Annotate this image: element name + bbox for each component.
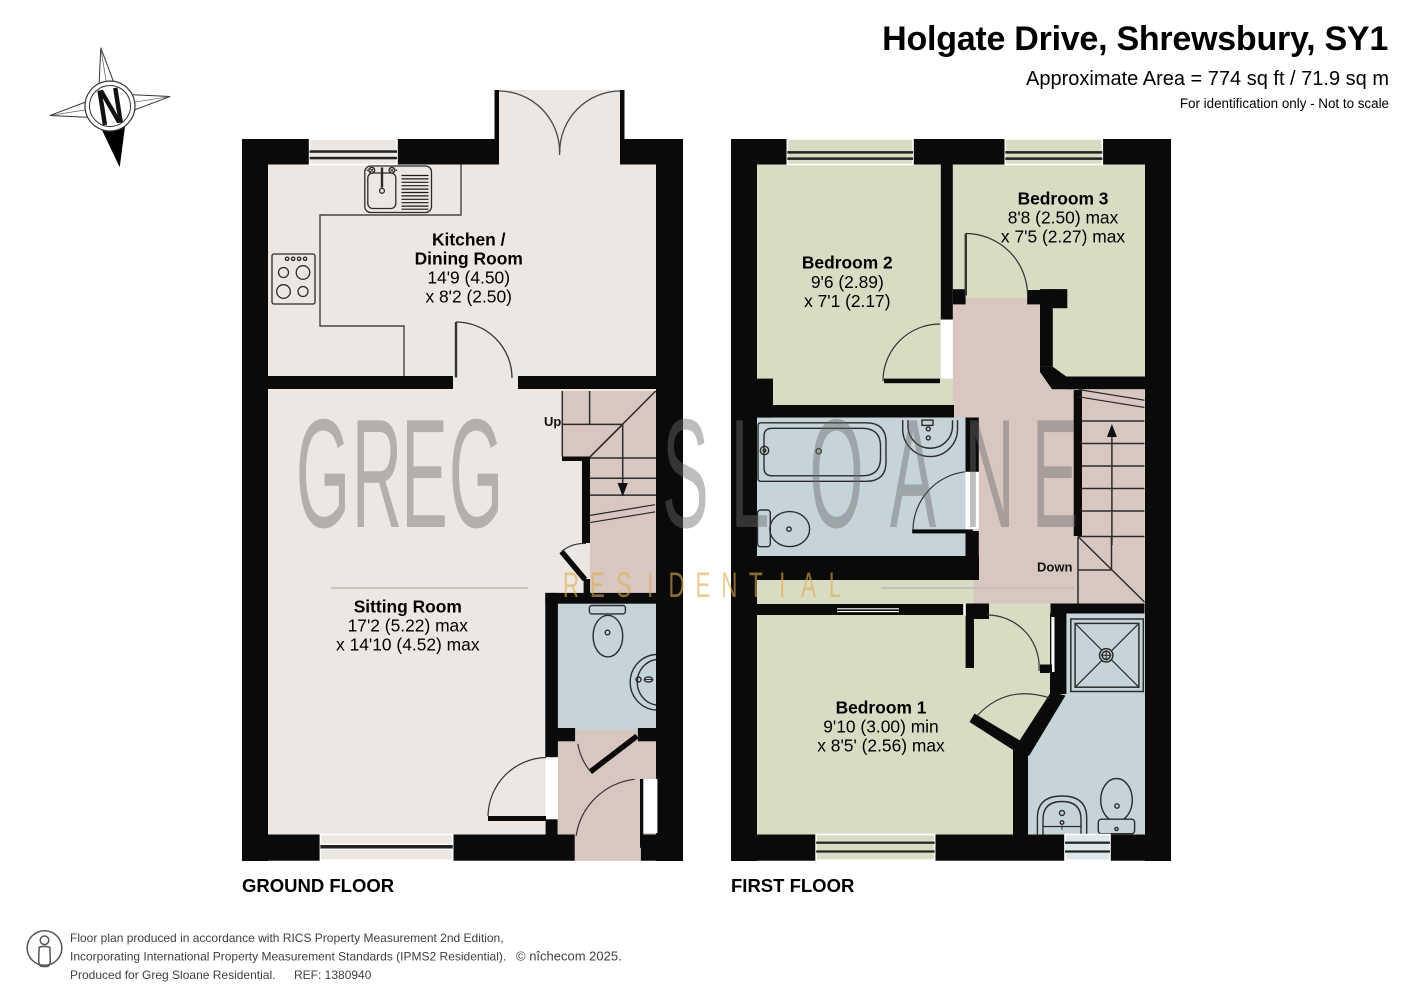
svg-text:G: G <box>449 388 503 561</box>
svg-text:9'10 (3.00) min: 9'10 (3.00) min <box>823 717 938 737</box>
svg-text:x 8'5' (2.56) max: x 8'5' (2.56) max <box>817 736 945 756</box>
svg-text:Floor plan produced in accorda: Floor plan produced in accordance with R… <box>70 931 504 945</box>
svg-text:Incorporating International Pr: Incorporating International Property Mea… <box>70 950 506 964</box>
svg-text:S: S <box>616 566 631 605</box>
svg-text:FIRST FLOOR: FIRST FLOOR <box>731 875 854 896</box>
svg-text:Down: Down <box>1037 560 1072 575</box>
svg-text:Approximate Area = 774 sq ft /: Approximate Area = 774 sq ft / 71.9 sq m <box>1026 68 1389 90</box>
svg-text:Holgate Drive, Shrewsbury, SY1: Holgate Drive, Shrewsbury, SY1 <box>882 20 1388 58</box>
svg-text:A: A <box>890 388 937 561</box>
svg-text:Bedroom 3: Bedroom 3 <box>1018 189 1109 209</box>
svg-text:x 8'2 (2.50): x 8'2 (2.50) <box>425 287 511 307</box>
svg-text:G: G <box>296 388 350 561</box>
svg-text:A: A <box>801 566 816 605</box>
svg-text:Bedroom 1: Bedroom 1 <box>836 698 927 718</box>
svg-text:O: O <box>809 388 863 561</box>
svg-text:L: L <box>829 566 841 605</box>
svg-text:17'2 (5.22) max: 17'2 (5.22) max <box>348 616 469 636</box>
svg-text:x 7'1 (2.17): x 7'1 (2.17) <box>804 291 890 311</box>
svg-text:Produced for Greg Sloane Resid: Produced for Greg Sloane Residential. <box>70 968 275 982</box>
svg-text:E: E <box>696 566 711 605</box>
svg-text:N: N <box>964 388 1014 561</box>
svg-text:R: R <box>563 566 579 605</box>
svg-text:For identification only - Not: For identification only - Not to scale <box>1180 96 1389 111</box>
svg-text:Sitting Room: Sitting Room <box>354 597 462 617</box>
svg-text:Kitchen /: Kitchen / <box>432 230 506 250</box>
svg-text:x 14'10 (4.52) max: x 14'10 (4.52) max <box>336 635 480 655</box>
svg-text:E: E <box>590 566 605 605</box>
svg-text:REF: 1380940: REF: 1380940 <box>294 968 372 982</box>
svg-text:© nîchecom 2025.: © nîchecom 2025. <box>516 949 622 964</box>
svg-text:GROUND FLOOR: GROUND FLOOR <box>242 875 394 896</box>
svg-text:N: N <box>721 566 737 605</box>
svg-text:9'6 (2.89): 9'6 (2.89) <box>811 272 884 292</box>
svg-text:I: I <box>647 566 653 605</box>
svg-text:Dining Room: Dining Room <box>415 249 523 269</box>
svg-text:E: E <box>1032 388 1079 561</box>
svg-text:E: E <box>401 388 448 561</box>
svg-text:8'8 (2.50) max: 8'8 (2.50) max <box>1008 208 1119 228</box>
svg-text:Up: Up <box>544 414 561 429</box>
svg-text:x 7'5 (2.27) max: x 7'5 (2.27) max <box>1001 227 1125 247</box>
svg-text:D: D <box>669 566 685 605</box>
svg-text:R: R <box>352 388 402 561</box>
svg-text:14'9 (4.50): 14'9 (4.50) <box>427 268 510 288</box>
svg-text:Bedroom 2: Bedroom 2 <box>802 253 893 273</box>
svg-text:I: I <box>779 566 785 605</box>
svg-text:S: S <box>662 388 709 561</box>
svg-text:T: T <box>749 566 763 605</box>
svg-text:L: L <box>731 388 770 561</box>
